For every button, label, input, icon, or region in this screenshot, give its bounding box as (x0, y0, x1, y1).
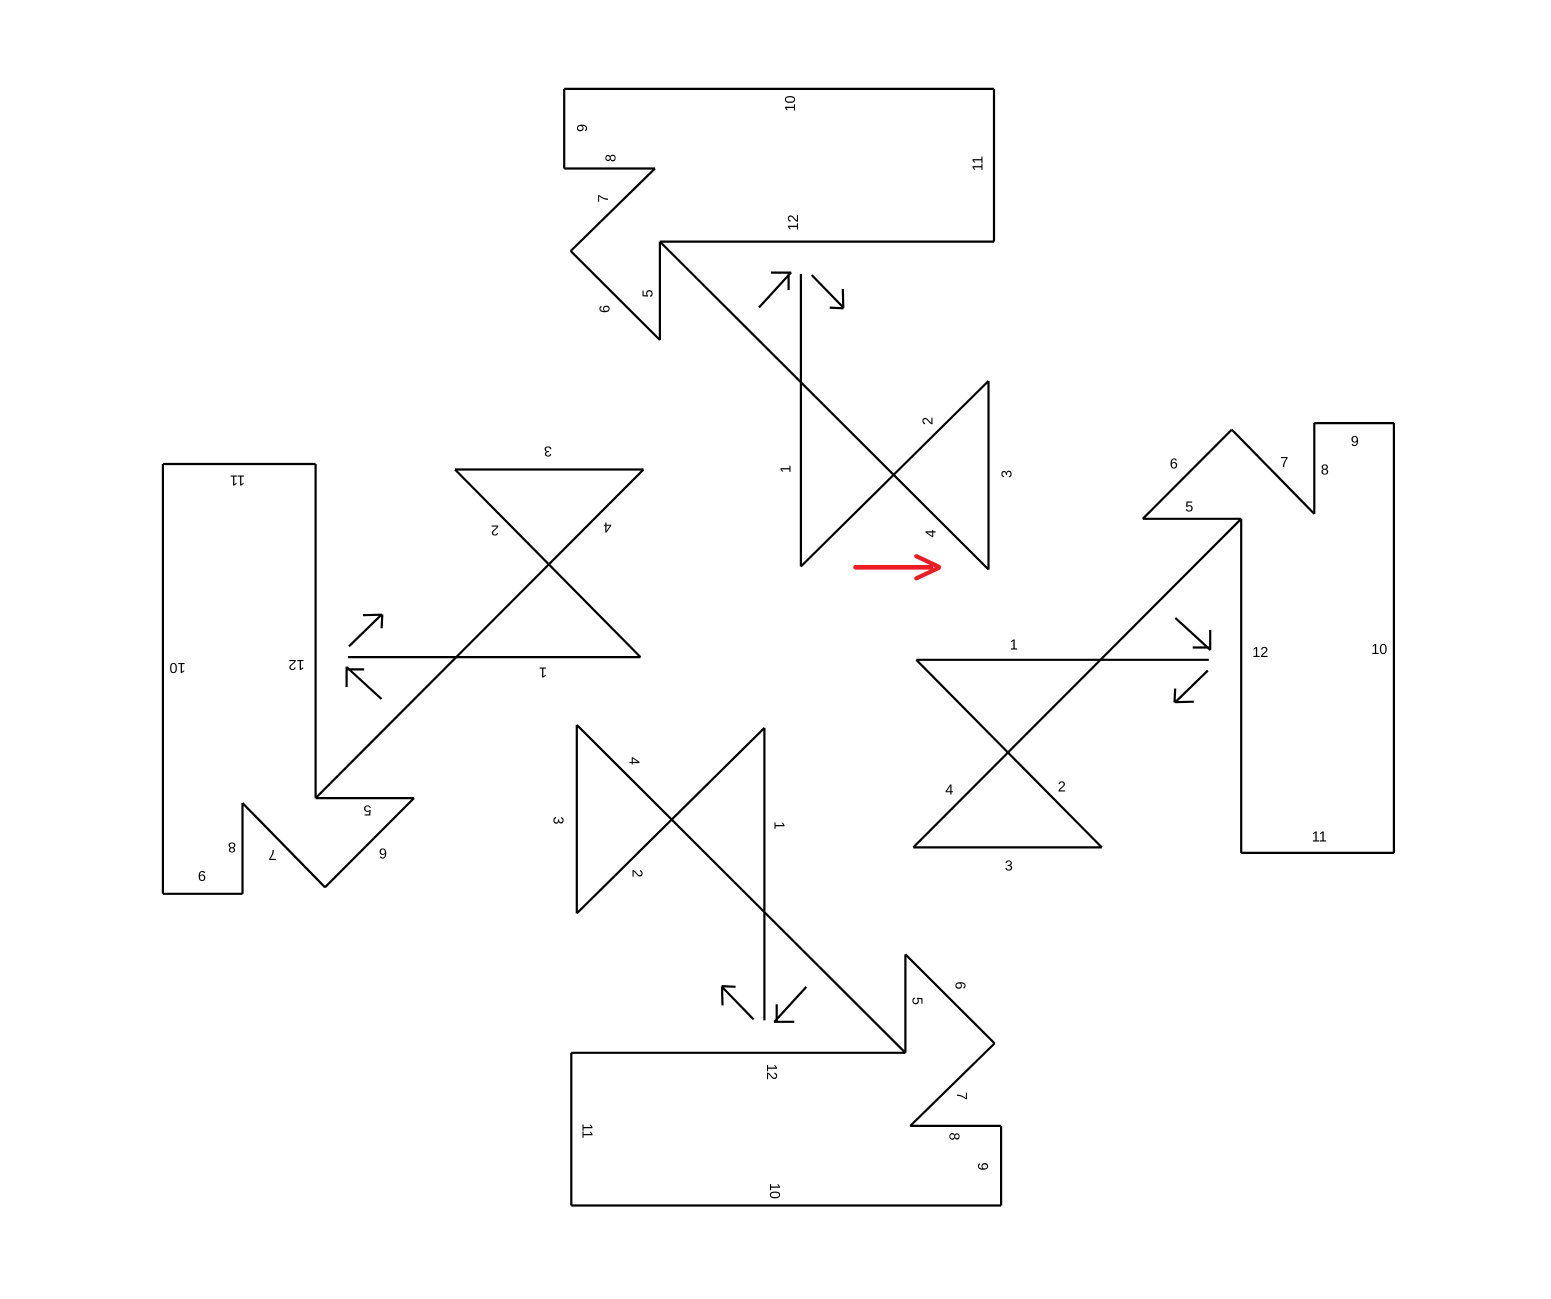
svg-text:5: 5 (1185, 500, 1193, 516)
svg-text:4: 4 (945, 783, 953, 799)
svg-text:2: 2 (1058, 780, 1066, 796)
svg-text:9: 9 (575, 124, 591, 132)
svg-text:2: 2 (629, 869, 645, 877)
svg-text:6: 6 (1170, 457, 1178, 473)
svg-text:8: 8 (228, 838, 236, 854)
svg-text:5: 5 (641, 289, 657, 297)
svg-text:8: 8 (946, 1132, 962, 1140)
svg-text:3: 3 (544, 442, 552, 458)
svg-text:6: 6 (952, 981, 968, 989)
svg-text:12: 12 (1252, 645, 1268, 661)
svg-text:3: 3 (550, 816, 566, 824)
svg-text:6: 6 (598, 305, 614, 313)
svg-text:12: 12 (786, 214, 802, 230)
svg-text:11: 11 (971, 156, 987, 171)
svg-text:7: 7 (953, 1092, 969, 1100)
svg-text:7: 7 (268, 846, 276, 862)
svg-text:5: 5 (363, 801, 371, 817)
svg-text:1: 1 (539, 663, 547, 679)
svg-text:1: 1 (779, 465, 795, 473)
svg-text:11: 11 (579, 1123, 595, 1138)
svg-text:9: 9 (198, 867, 206, 883)
svg-text:4: 4 (924, 529, 940, 537)
svg-text:5: 5 (909, 997, 925, 1005)
svg-text:6: 6 (379, 844, 387, 860)
svg-text:11: 11 (230, 471, 245, 487)
svg-text:1: 1 (771, 821, 787, 829)
svg-text:10: 10 (169, 659, 185, 675)
svg-text:8: 8 (1321, 463, 1329, 479)
svg-text:8: 8 (604, 154, 620, 162)
svg-text:12: 12 (288, 656, 304, 672)
svg-text:10: 10 (1371, 642, 1387, 658)
svg-text:3: 3 (1005, 859, 1013, 875)
svg-text:7: 7 (1280, 455, 1288, 471)
svg-text:7: 7 (596, 194, 612, 202)
svg-text:4: 4 (603, 518, 611, 534)
svg-text:11: 11 (1312, 830, 1327, 846)
svg-text:2: 2 (491, 521, 499, 537)
svg-text:1: 1 (1010, 638, 1018, 654)
svg-text:2: 2 (921, 417, 937, 425)
svg-text:10: 10 (766, 1183, 782, 1199)
svg-text:12: 12 (763, 1064, 779, 1080)
svg-text:9: 9 (974, 1162, 990, 1170)
svg-text:10: 10 (783, 95, 799, 111)
svg-text:9: 9 (1351, 434, 1359, 450)
svg-text:4: 4 (626, 757, 642, 765)
svg-text:3: 3 (1000, 470, 1016, 478)
